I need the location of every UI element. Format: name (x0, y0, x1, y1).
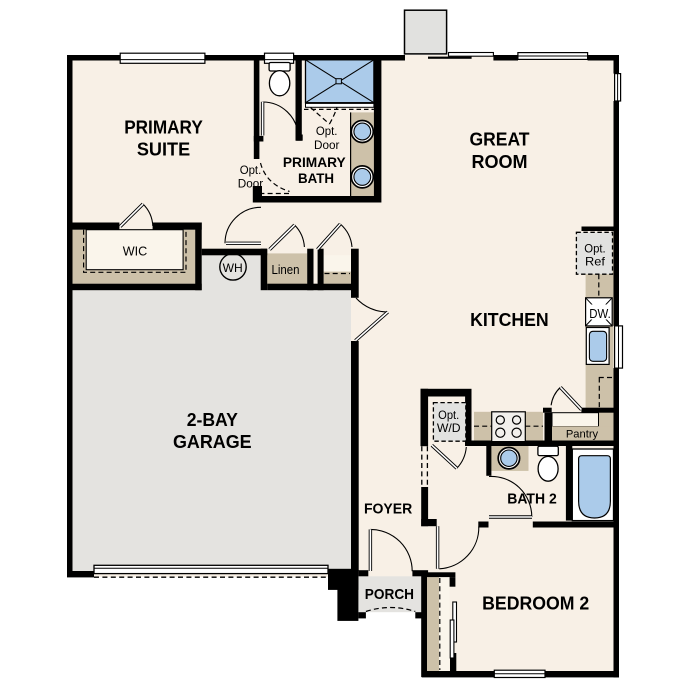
svg-text:BATH 2: BATH 2 (507, 491, 557, 508)
svg-text:Opt.: Opt. (316, 124, 338, 138)
svg-text:W/D: W/D (437, 421, 461, 435)
svg-text:DW.: DW. (589, 306, 611, 321)
svg-text:Opt.: Opt. (438, 408, 459, 422)
svg-text:Ref: Ref (585, 255, 606, 269)
svg-text:WIC: WIC (123, 244, 148, 259)
svg-text:Linen: Linen (272, 262, 300, 277)
svg-text:SUITE: SUITE (137, 138, 190, 159)
svg-text:KITCHEN: KITCHEN (470, 309, 549, 330)
svg-text:ROOM: ROOM (471, 151, 527, 172)
svg-text:GREAT: GREAT (469, 128, 529, 149)
svg-text:Door: Door (314, 138, 339, 152)
svg-text:PORCH: PORCH (365, 586, 414, 603)
svg-text:FOYER: FOYER (364, 502, 413, 518)
svg-text:Opt.: Opt. (240, 163, 262, 177)
svg-text:Opt.: Opt. (584, 242, 605, 256)
svg-text:GARAGE: GARAGE (173, 431, 252, 452)
svg-text:BEDROOM 2: BEDROOM 2 (482, 592, 589, 613)
svg-text:BATH: BATH (298, 171, 334, 186)
svg-text:PRIMARY: PRIMARY (283, 155, 346, 170)
svg-text:2-BAY: 2-BAY (187, 409, 238, 430)
svg-text:Pantry: Pantry (566, 429, 599, 441)
svg-text:PRIMARY: PRIMARY (124, 117, 203, 138)
svg-text:Door: Door (238, 177, 263, 191)
svg-text:WH: WH (223, 261, 243, 275)
